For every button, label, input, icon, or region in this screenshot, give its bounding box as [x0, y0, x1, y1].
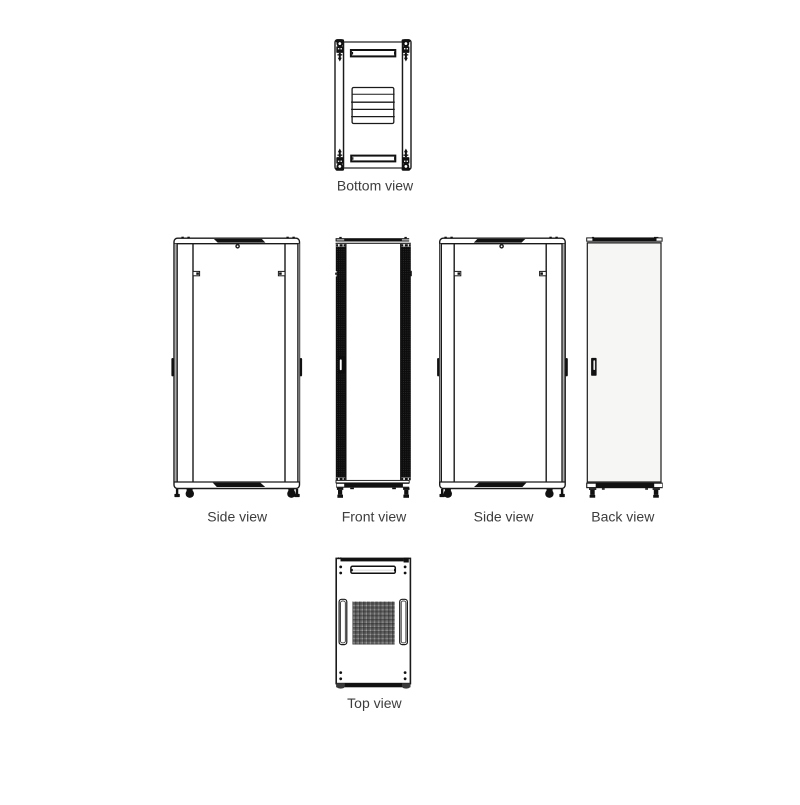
svg-text:Top view: Top view	[347, 695, 402, 711]
svg-text:Side view: Side view	[474, 509, 535, 525]
svg-text:Front view: Front view	[342, 509, 407, 525]
svg-text:Bottom view: Bottom view	[337, 178, 414, 194]
svg-text:Side view: Side view	[207, 509, 268, 525]
svg-text:Back view: Back view	[591, 509, 655, 525]
